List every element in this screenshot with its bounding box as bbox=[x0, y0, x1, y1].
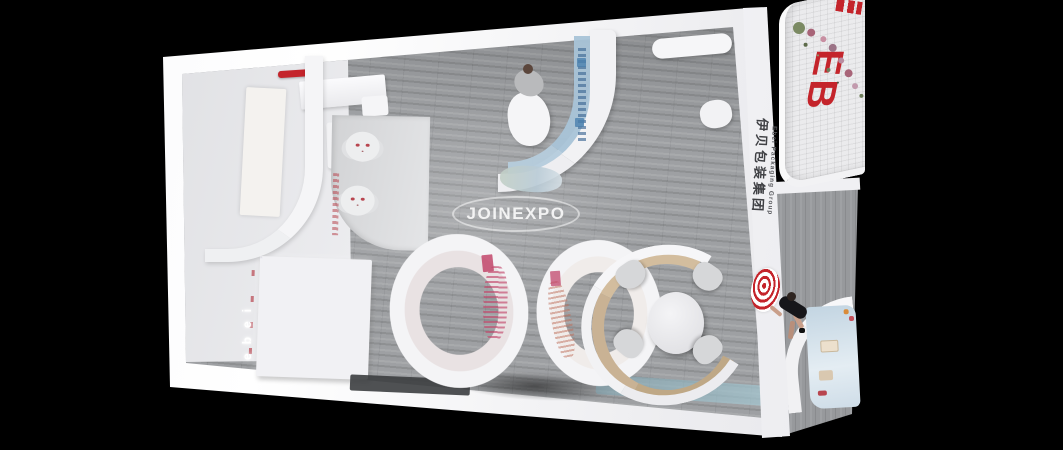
graphic-text-strip bbox=[544, 279, 579, 359]
curved-tile-wall: EB bbox=[779, 0, 865, 192]
graphic-glyph bbox=[575, 118, 584, 127]
mascot-face bbox=[340, 185, 375, 216]
graphic-text-strip bbox=[332, 173, 339, 235]
watermark: JOINEXPO bbox=[452, 196, 580, 232]
graphic-glyph bbox=[481, 254, 494, 272]
brand-letters: EB bbox=[762, 45, 886, 117]
graphic-text-strip bbox=[482, 266, 509, 341]
mascot-face bbox=[345, 131, 380, 162]
shelf-cell bbox=[260, 256, 262, 258]
booth-render-scene: ebei EB 伊贝包装集团 Ebei Packaging Group bbox=[0, 0, 1063, 450]
lit-brand-letters: ebei bbox=[240, 280, 256, 380]
side-table bbox=[361, 95, 388, 117]
blue-graphic-panel bbox=[805, 305, 860, 409]
graphic-glyph bbox=[577, 58, 586, 67]
watermark-text: JOINEXPO bbox=[467, 204, 566, 224]
graphic-glyph bbox=[550, 271, 561, 287]
display-shelf-grid bbox=[256, 256, 372, 380]
